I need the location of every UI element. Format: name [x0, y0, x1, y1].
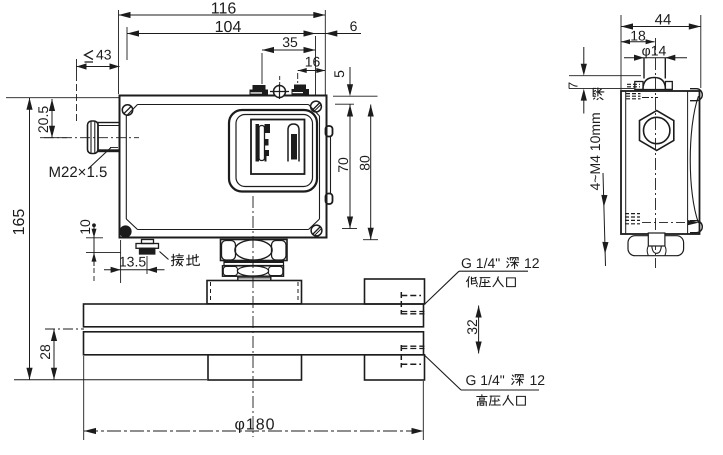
svg-text:6: 6	[350, 18, 358, 34]
svg-text:13.5: 13.5	[119, 254, 146, 270]
svg-text:35: 35	[282, 34, 298, 50]
svg-text:7: 7	[566, 82, 581, 89]
svg-text:20.5: 20.5	[35, 106, 51, 133]
svg-text:44: 44	[655, 12, 672, 29]
svg-text:12: 12	[524, 255, 540, 271]
svg-text:12: 12	[530, 372, 546, 388]
svg-text:10: 10	[77, 219, 93, 235]
svg-text:18: 18	[630, 28, 646, 44]
svg-text:5: 5	[331, 70, 347, 78]
svg-text:G 1/4": G 1/4"	[466, 372, 505, 388]
svg-text:43: 43	[96, 47, 112, 63]
svg-text:M22×1.5: M22×1.5	[49, 164, 108, 181]
svg-text:16: 16	[305, 54, 321, 70]
svg-text:116: 116	[211, 1, 237, 18]
svg-text:32: 32	[464, 319, 480, 335]
svg-text:80: 80	[357, 155, 373, 171]
svg-text:104: 104	[215, 19, 242, 36]
svg-text:4~M4 10mm: 4~M4 10mm	[587, 112, 603, 190]
svg-text:28: 28	[37, 344, 53, 360]
svg-text:G 1/4": G 1/4"	[461, 255, 500, 271]
svg-text:165: 165	[11, 209, 28, 236]
svg-text:70: 70	[335, 157, 351, 173]
svg-text:φ180: φ180	[234, 417, 275, 434]
svg-text:φ14: φ14	[642, 43, 667, 59]
